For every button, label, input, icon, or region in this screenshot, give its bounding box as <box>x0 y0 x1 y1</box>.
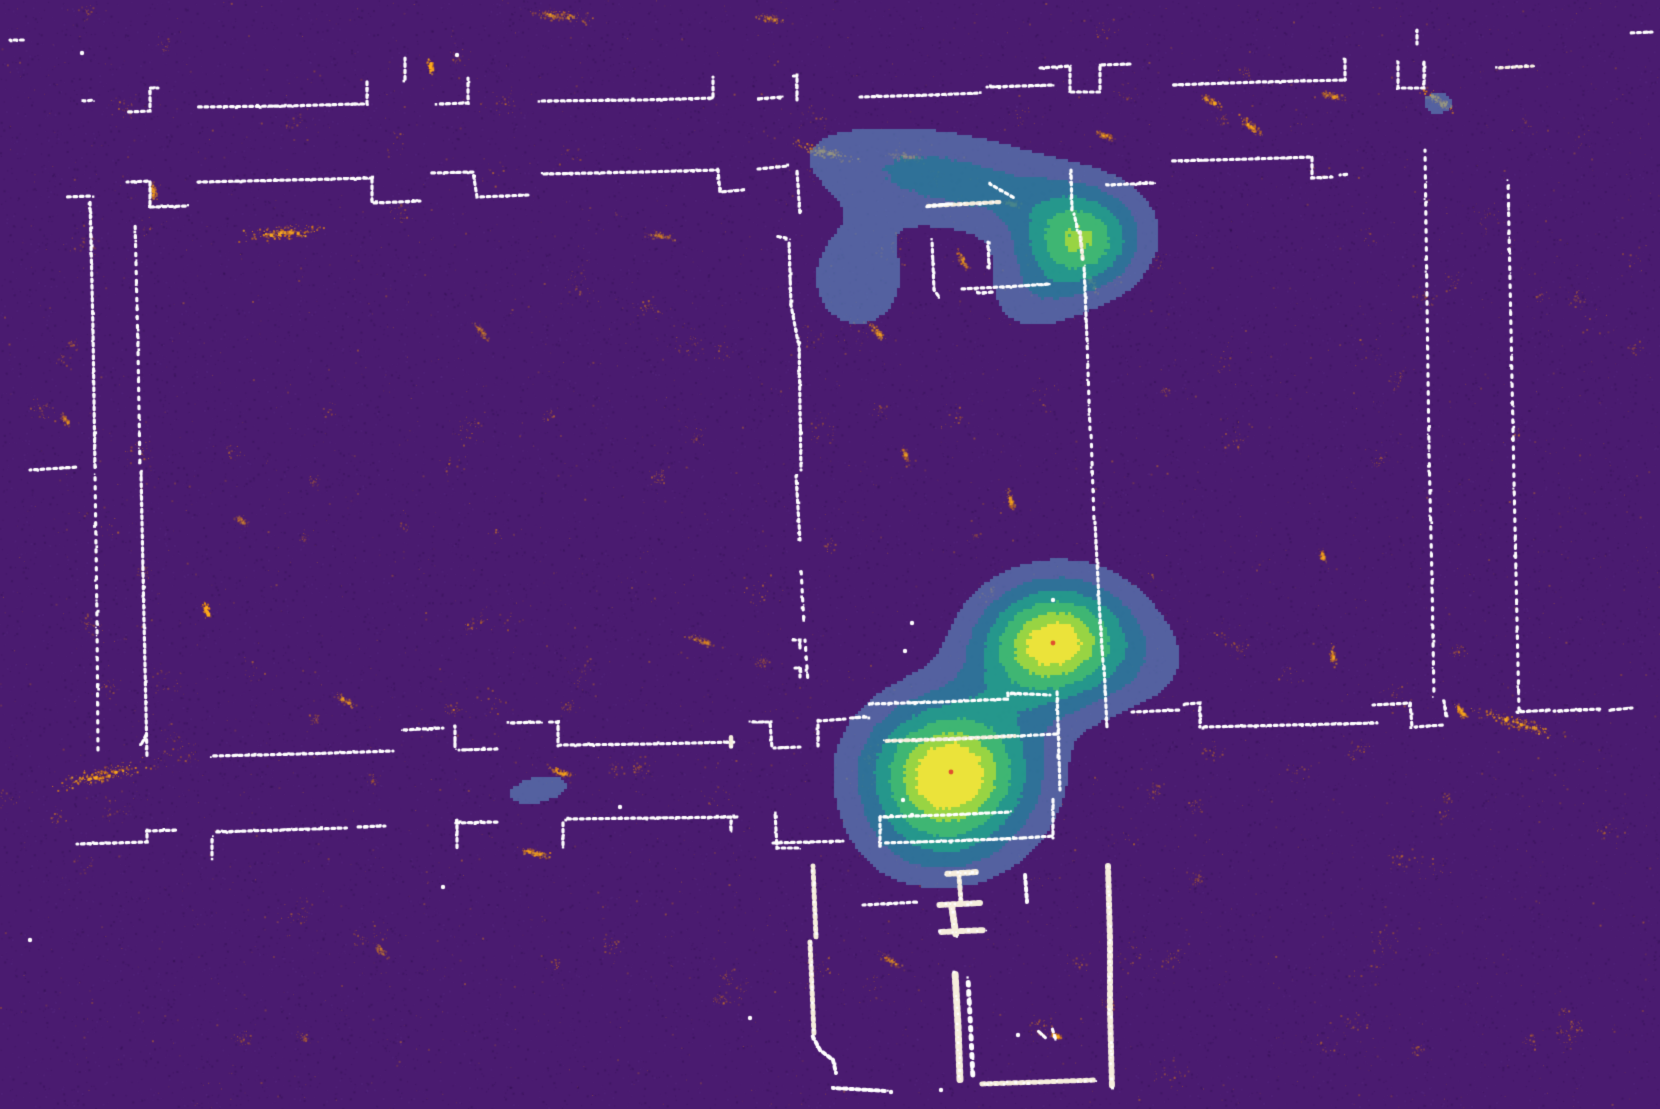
map-canvas <box>0 0 1660 1109</box>
occupancy-heatmap-view <box>0 0 1660 1109</box>
